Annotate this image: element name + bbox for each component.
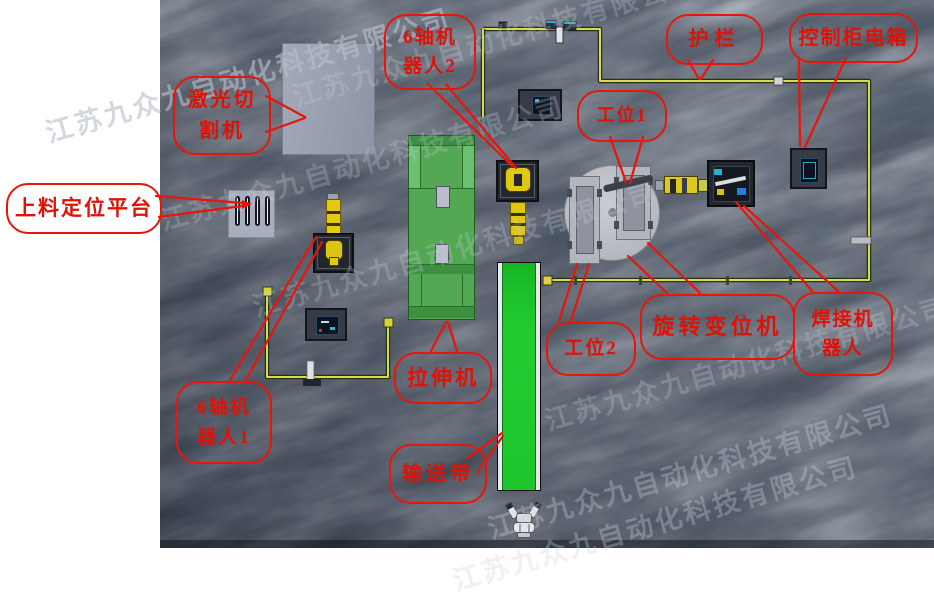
callout-station2: 工位2 bbox=[546, 322, 636, 376]
callout-text: 割机 bbox=[199, 116, 245, 147]
callout-station1: 工位1 bbox=[577, 90, 667, 142]
station-2-fixture bbox=[569, 176, 600, 264]
callout-rotary-positioner: 旋转变位机 bbox=[640, 294, 795, 360]
callout-robot1: 6轴机 器人1 bbox=[176, 381, 272, 464]
welding-machine-box bbox=[707, 160, 755, 207]
platform-slot bbox=[235, 196, 240, 226]
callout-text: 控制柜电箱 bbox=[799, 23, 909, 54]
stretch-machine bbox=[408, 135, 475, 320]
robot-arm bbox=[510, 202, 526, 236]
callout-text: 6轴机 bbox=[197, 393, 251, 422]
callout-welding-robot: 焊接机 器人 bbox=[793, 292, 893, 376]
conveyor-belt bbox=[497, 262, 541, 491]
callout-text: 器人1 bbox=[197, 423, 251, 452]
callout-text: 上料定位平台 bbox=[15, 192, 153, 225]
callout-text: 旋转变位机 bbox=[652, 310, 782, 344]
six-axis-robot-2 bbox=[494, 158, 542, 250]
welding-robot bbox=[655, 174, 713, 198]
robot-base bbox=[496, 160, 539, 202]
platform-slot bbox=[255, 196, 260, 226]
platform-slot bbox=[245, 196, 250, 226]
callout-control-cabinet: 控制柜电箱 bbox=[789, 13, 918, 63]
loading-platform bbox=[228, 190, 275, 238]
callout-robot2: 6轴机 器人2 bbox=[384, 14, 476, 90]
callout-guardrail: 护栏 bbox=[666, 14, 763, 65]
platform-slot bbox=[265, 196, 270, 226]
callout-text: 焊接机 bbox=[811, 305, 874, 334]
callout-text: 工位2 bbox=[564, 334, 618, 363]
callout-text: 器人2 bbox=[403, 52, 457, 81]
control-box-left bbox=[305, 308, 347, 341]
callout-text: 护栏 bbox=[689, 24, 741, 55]
callout-stretch-machine: 拉伸机 bbox=[394, 352, 492, 404]
callout-text: 激光切 bbox=[188, 85, 257, 116]
robot-arm bbox=[326, 199, 341, 235]
machine-slot bbox=[436, 186, 450, 208]
laser-cutter bbox=[282, 43, 375, 155]
callout-text: 6轴机 bbox=[403, 23, 457, 52]
six-axis-robot-1 bbox=[306, 190, 356, 274]
robot-base bbox=[313, 233, 354, 273]
layout-scene: 江苏九众九自动化科技有限公司 江苏九众九自动化科技有限公司 江苏九众九自动化科技… bbox=[0, 0, 934, 548]
machine-slot bbox=[435, 244, 449, 264]
callout-laser-cutter: 激光切 割机 bbox=[173, 76, 271, 155]
callout-text: 拉伸机 bbox=[407, 362, 479, 395]
transport-robot bbox=[504, 499, 544, 539]
control-cabinet bbox=[790, 148, 827, 189]
callout-text: 器人 bbox=[822, 334, 864, 363]
control-box-top bbox=[518, 89, 562, 121]
callout-text: 输送带 bbox=[402, 459, 474, 490]
callout-loading-platform: 上料定位平台 bbox=[6, 183, 162, 234]
callout-text: 工位1 bbox=[597, 102, 648, 130]
callout-conveyor: 输送带 bbox=[389, 444, 487, 504]
